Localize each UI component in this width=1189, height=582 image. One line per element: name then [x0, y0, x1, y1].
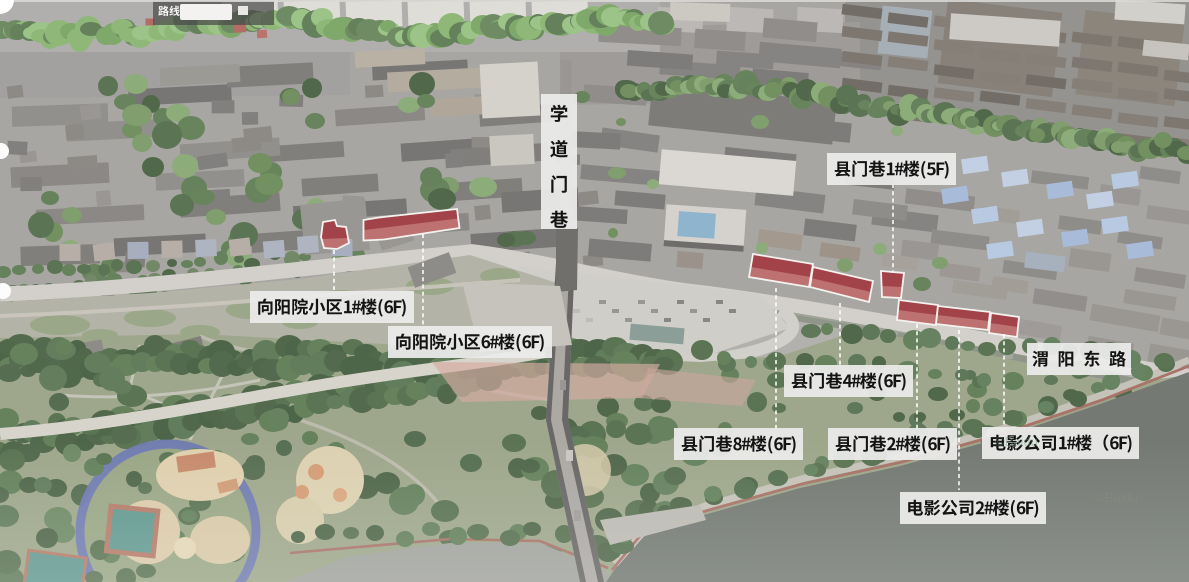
svg-text:©Baidu: ©Baidu [995, 434, 1038, 449]
svg-text:©Baidu: ©Baidu [1095, 490, 1138, 505]
